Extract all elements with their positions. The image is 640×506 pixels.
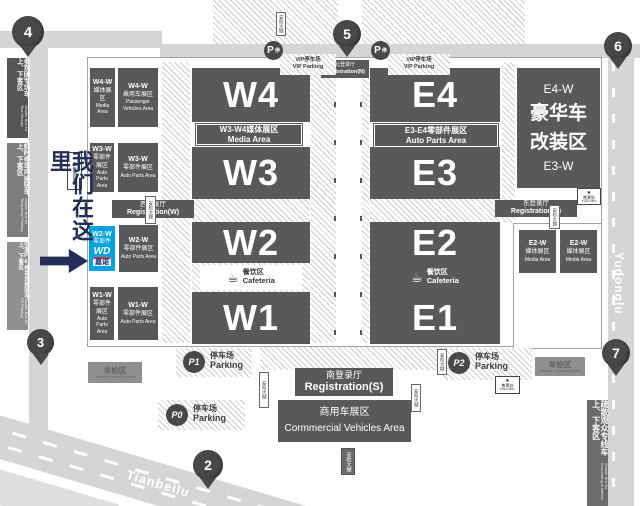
parking-p2-circle: P2	[448, 352, 470, 374]
banner-east-auto-parts: E3-E4零部件展区 Auto Parts Area	[374, 124, 498, 147]
w1w-parts-box-left: W1-W 零部件展区 Auto Parts Area	[90, 287, 114, 340]
banner-west-en: Media Area	[228, 135, 270, 145]
gate-pin-6: 6	[604, 32, 632, 60]
w4w-media-box: W4-W 媒体展区 Media Area	[90, 68, 115, 127]
gate-pin-3: 3	[27, 329, 54, 356]
vehicle-check-west: 车检区 Vehicle Checking Area	[88, 362, 142, 383]
cafeteria-west-en: Cafeteria	[243, 277, 275, 286]
w3w-right-zh: 零部件展区	[123, 165, 153, 173]
banner-west-zh: W3-W4媒体展区	[220, 125, 279, 135]
w4w-right-zh: 乘用车展区	[123, 92, 153, 100]
parking-p2-en: Parking	[475, 361, 508, 371]
w3w-right-code: W3-W	[128, 156, 147, 165]
p-pin-label: P	[374, 45, 381, 56]
w2w-right-code: W2-W	[129, 237, 148, 246]
hatch-top-right	[362, 0, 525, 44]
e2w-left-en: Media Area	[525, 257, 550, 263]
shuttle-tour-zh: 参观团专场车上、下客区	[14, 58, 28, 105]
w1w-left-en: Auto Parts Area	[91, 316, 113, 335]
security-tent-sign: 安检大棚	[259, 372, 269, 408]
e2w-media-box-left: E2-W 媒体展区 Media Area	[519, 230, 556, 273]
parking-p1-label: 停车场 Parking	[210, 351, 243, 371]
w3w-right-en: Auto Parts Area	[120, 173, 155, 179]
we-are-here-label: 我们在这里	[48, 150, 92, 254]
parking-p2-label: 停车场 Parking	[475, 352, 508, 372]
w2w-right-zh: 零部件展区	[123, 246, 153, 254]
gate-pin-7-number: 7	[612, 345, 620, 361]
gate-pin-5-number: 5	[343, 26, 351, 42]
w4w-left-en: Media Area	[91, 103, 114, 116]
parking-p0-label: 停车场 Parking	[193, 404, 226, 424]
hall-e1: E1	[370, 292, 500, 344]
e2w-right-en: Media Area	[566, 257, 591, 263]
shuttle-temp-zh: 临时停车坪接驳车上、下客区	[14, 143, 28, 198]
luxury-bottom-code: E3-W	[544, 159, 574, 174]
w1w-parts-box-right: W1-W 零部件展区 Auto Parts Area	[118, 287, 158, 340]
w1w-left-zh: 零部件展区	[91, 301, 113, 316]
registration-south-en: Registration(S)	[305, 381, 384, 395]
road-left-vertical	[29, 44, 48, 430]
gate-pin-4: 4	[12, 16, 44, 48]
road-label-tianbeilu: Tianbeilu	[124, 467, 191, 500]
vip-parking-pin-left: P 停	[264, 41, 283, 60]
hall-w3: W3	[192, 147, 310, 199]
shuttle-bar-evacuation: 疏散观众专线车上、下客区 Shuttle Bus for Evacuating …	[587, 400, 608, 506]
gate-pin-7: 7	[602, 339, 630, 367]
security-tent-sign: 安检大棚	[341, 448, 355, 475]
ticket-office-east: ★ 售票处 Ticket Office	[577, 188, 601, 205]
parking-p2-zh: 停车场	[475, 352, 508, 361]
highlight-code: W2-W	[92, 231, 111, 240]
registration-south-zh: 南登录厅	[326, 370, 362, 381]
gate-pin-6-number: 6	[614, 38, 622, 54]
shuttle-bar-p6-parking: 空港P6停车场接驳车上、下客区 Shuttle Bus for P6 Parki…	[7, 242, 28, 330]
w4w-right-code: W4-W	[128, 83, 147, 92]
shuttle-evac-zh: 疏散观众专线车上、下客区	[591, 400, 608, 463]
shuttle-evac-en: Shuttle Bus for Evacuating Audience	[600, 463, 608, 506]
gate-pin-5: 5	[333, 20, 361, 48]
security-tent-sign: 安检大棚	[276, 12, 286, 36]
hatch-strip-right	[502, 62, 515, 223]
luxury-name-line2: 改装区	[530, 131, 587, 155]
w2w-parts-box-right: W2-W 零部件展区 Auto Parts Area	[119, 225, 158, 272]
security-tent-sign: 安检大棚	[549, 205, 560, 229]
registration-east-zh: 东登录厅	[523, 200, 549, 208]
security-tent-sign: 安检大棚	[437, 349, 447, 375]
parking-p1-id: P1	[188, 357, 199, 367]
cafeteria-east: ☕ 餐饮区 Cafeteria	[370, 263, 500, 292]
commercial-zh: 商用车展区	[320, 407, 370, 420]
exhibitor-logo: WD	[94, 247, 111, 259]
shuttle-p6-zh: 空港P6停车场接驳车上、下客区	[16, 242, 28, 298]
gate-pin-2: 2	[193, 450, 223, 480]
gate-pin-2-number: 2	[204, 457, 212, 473]
hall-w1: W1	[192, 292, 310, 344]
e2w-right-code: E2-W	[570, 240, 588, 249]
hatch-corridor-right	[362, 62, 369, 343]
venue-map: Tianbeilu Yudonglu W4 W3 W2 W1 E4 E3 E2 …	[0, 0, 640, 506]
ticket-office-south: ★ 售票处 Ticket Office	[495, 376, 520, 394]
vip-left-zh: VIP停车场	[282, 57, 334, 64]
exhibitor-logo-sub: 嘉诺	[93, 259, 111, 267]
parking-p1-circle: P1	[183, 351, 205, 373]
w1w-left-code: W1-W	[92, 292, 111, 301]
hatch-gap-east	[370, 199, 500, 222]
cafeteria-east-en: Cafeteria	[427, 277, 459, 286]
w3w-parts-box-right: W3-W 零部件展区 Auto Parts Area	[118, 143, 158, 192]
security-tent-sign: 安检大棚	[411, 384, 421, 412]
vip-right-en: VIP Parking	[392, 64, 446, 71]
p-pin-sub: 停	[275, 47, 280, 54]
corridor-door-marks-left	[334, 64, 336, 343]
security-tent-sign: 安检大棚	[145, 196, 156, 224]
w1w-right-zh: 零部件展区	[123, 311, 153, 319]
w4w-left-code: W4-W	[93, 79, 112, 88]
parking-p1-en: Parking	[210, 360, 243, 370]
corridor-door-marks-right	[360, 64, 362, 343]
e2w-right-zh: 媒体展区	[566, 249, 590, 257]
vehicle-check-west-en: Vehicle Checking Area	[95, 375, 135, 380]
hatch-gap-west	[192, 199, 310, 222]
hall-w2: W2	[192, 222, 310, 263]
gate-pin-4-number: 4	[24, 24, 32, 41]
hatch-corridor-left	[311, 62, 336, 343]
commercial-vehicles-area: 商用车展区 Cormmercial Vehicles Area	[278, 400, 411, 442]
hall-e4: E4	[370, 68, 500, 122]
e2w-media-box-right: E2-W 媒体展区 Media Area	[560, 230, 597, 273]
w4w-right-en: Passenger Vehicles Area	[119, 99, 157, 112]
parking-p1-zh: 停车场	[210, 351, 243, 360]
parking-p0-id: P0	[171, 410, 182, 420]
parking-p0-en: Parking	[193, 413, 226, 423]
w1w-right-en: Auto Parts Area	[120, 319, 155, 325]
vehicle-check-east: 车检区 Vehicle Checking Area	[535, 357, 585, 376]
parking-p0-zh: 停车场	[193, 404, 226, 413]
hall-w4: W4	[192, 68, 310, 122]
shuttle-temp-en: Shuttle Bus for Temporary Parking	[20, 198, 28, 237]
luxury-top-code: E4-W	[544, 82, 574, 97]
coffee-cup-icon: ☕	[411, 271, 423, 284]
banner-east-zh: E3-E4零部件展区	[405, 126, 467, 136]
vip-parking-pin-right: P 停	[371, 41, 390, 60]
parking-p0-circle: P0	[166, 404, 188, 426]
commercial-en: Cormmercial Vehicles Area	[284, 423, 404, 436]
hatch-south-band	[260, 347, 460, 370]
ticket-south-en: Ticket Office	[500, 388, 515, 391]
banner-east-en: Auto Parts Area	[406, 136, 466, 146]
vip-left-en: VIP Parking	[282, 64, 334, 71]
w3w-left-zh: 零部件展区	[91, 155, 113, 170]
registration-south-dup-guard: 南登录厅 Registration(S)	[295, 368, 393, 396]
hall-e2: E2	[370, 222, 500, 263]
registration-east: 东登录厅 Registration(E)	[495, 200, 577, 217]
w2w-right-en: Auto Parts Area	[121, 254, 156, 260]
w4w-passenger-box: W4-W 乘用车展区 Passenger Vehicles Area	[118, 68, 158, 127]
shuttle-tour-en: Shuttle Bus for Tour Groups	[20, 105, 28, 138]
e2w-left-zh: 媒体展区	[525, 249, 549, 257]
p-pin-label: P	[267, 45, 274, 56]
road-label-yudonglu: Yudonglu	[612, 252, 626, 332]
vehicle-check-east-en: Vehicle Checking Area	[540, 369, 580, 374]
shuttle-bar-tour-groups: 参观团专场车上、下客区 Shuttle Bus for Tour Groups	[7, 58, 28, 138]
ticket-east-en: Ticket Office	[582, 200, 597, 203]
shuttle-bar-temporary-parking: 临时停车坪接驳车上、下客区 Shuttle Bus for Temporary …	[7, 143, 28, 237]
luxury-modification-area: E4-W 豪华车 改装区 E3-W	[517, 68, 600, 188]
parking-p2-id: P2	[453, 358, 464, 368]
vip-parking-right: VIP停车场 VIP Parking	[392, 57, 446, 70]
w3w-left-code: W3-W	[92, 146, 111, 155]
w4w-left-zh: 媒体展区	[91, 88, 114, 103]
p-pin-sub: 停	[382, 47, 387, 54]
w3w-left-en: Auto Parts Area	[91, 170, 113, 189]
cafeteria-west: ☕ 餐饮区 Cafeteria	[200, 265, 302, 290]
vip-parking-left: VIP停车场 VIP Parking	[282, 57, 334, 70]
banner-west-media-area: W3-W4媒体展区 Media Area	[196, 124, 302, 145]
e2w-left-code: E2-W	[529, 240, 547, 249]
luxury-name-line1: 豪华车	[530, 102, 587, 126]
hall-e3: E3	[370, 147, 500, 199]
w1w-right-code: W1-W	[128, 302, 147, 311]
shuttle-p6-en: Shuttle Bus for P6 Parking	[20, 298, 28, 330]
vip-right-zh: VIP停车场	[392, 57, 446, 64]
coffee-cup-icon: ☕	[227, 271, 239, 284]
gate-pin-3-number: 3	[37, 335, 44, 350]
